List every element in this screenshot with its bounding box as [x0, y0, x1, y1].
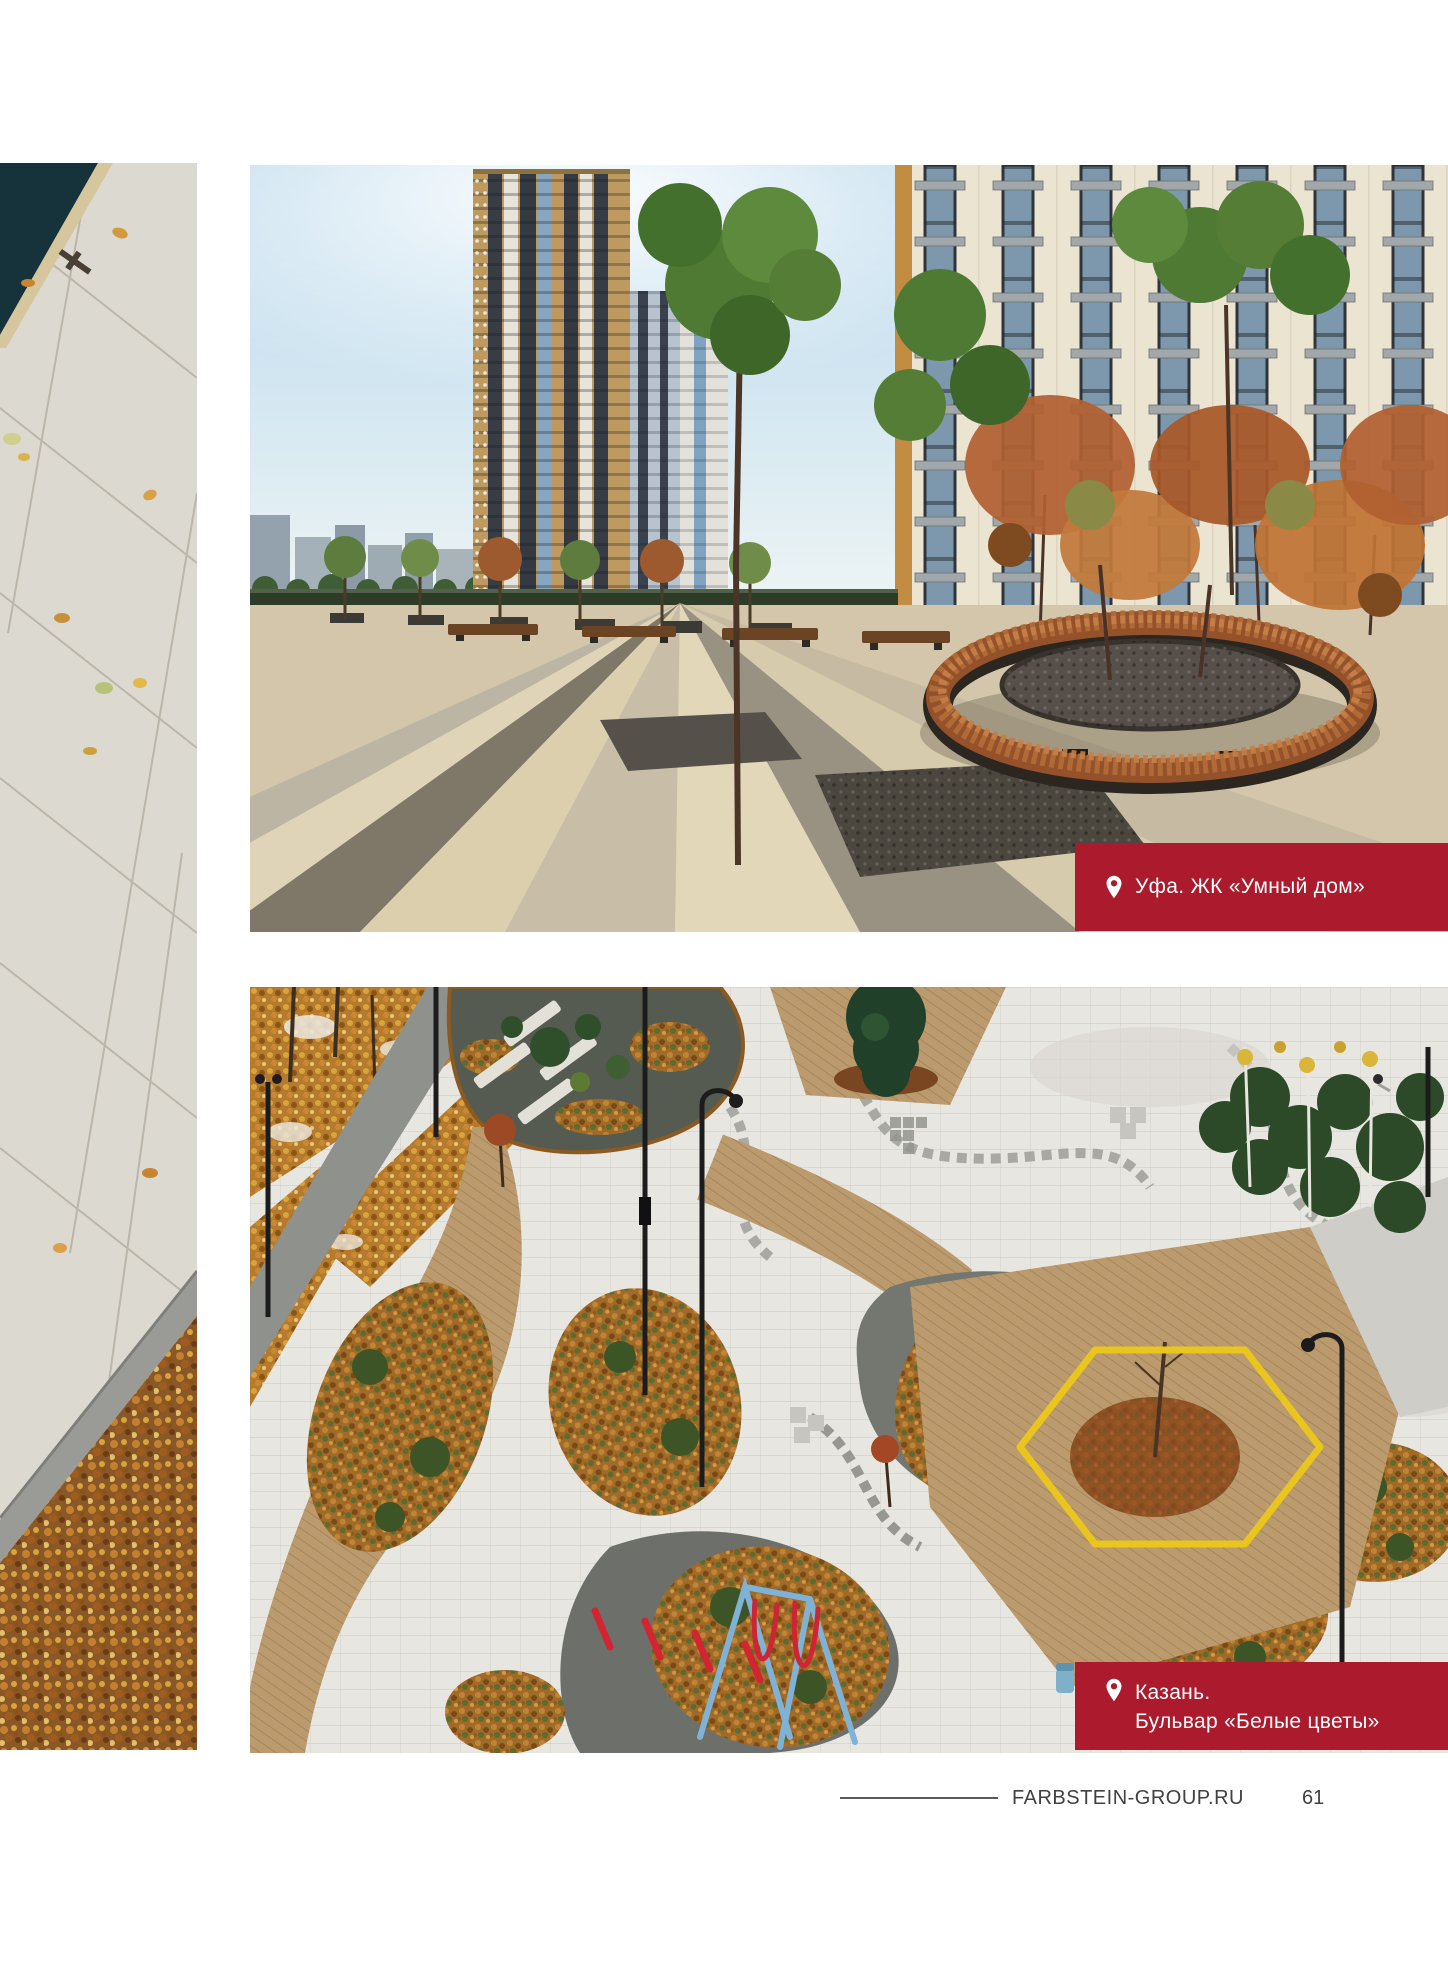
kazan-boulevard-scene	[250, 987, 1448, 1753]
ufa-plaza-scene	[250, 165, 1448, 932]
location-pin-icon	[1105, 1678, 1123, 1702]
page-number: 61	[1302, 1787, 1324, 1810]
page-footer: FARBSTEIN-GROUP.RU 61	[840, 1781, 1324, 1815]
photo-caption-ufa: Уфа. ЖК «Умный дом»	[1075, 843, 1448, 931]
caption-text-line1: Казань.	[1135, 1678, 1380, 1707]
pavement-leaves-scene	[0, 163, 197, 1750]
top-photo-ufa: Уфа. ЖК «Умный дом»	[250, 165, 1448, 932]
photo-caption-kazan: Казань. Бульвар «Белые цветы»	[1075, 1662, 1448, 1750]
footer-website: FARBSTEIN-GROUP.RU	[1012, 1787, 1244, 1810]
location-pin-icon	[1105, 875, 1123, 899]
caption-text-line2: Бульвар «Белые цветы»	[1135, 1707, 1380, 1736]
bottom-photo-kazan: Казань. Бульвар «Белые цветы»	[250, 987, 1448, 1753]
left-strip-photo	[0, 163, 197, 1750]
caption-text: Уфа. ЖК «Умный дом»	[1135, 875, 1365, 899]
footer-rule	[840, 1797, 998, 1799]
trash-bin	[1056, 1663, 1074, 1693]
magazine-page: Уфа. ЖК «Умный дом»	[0, 0, 1448, 1974]
